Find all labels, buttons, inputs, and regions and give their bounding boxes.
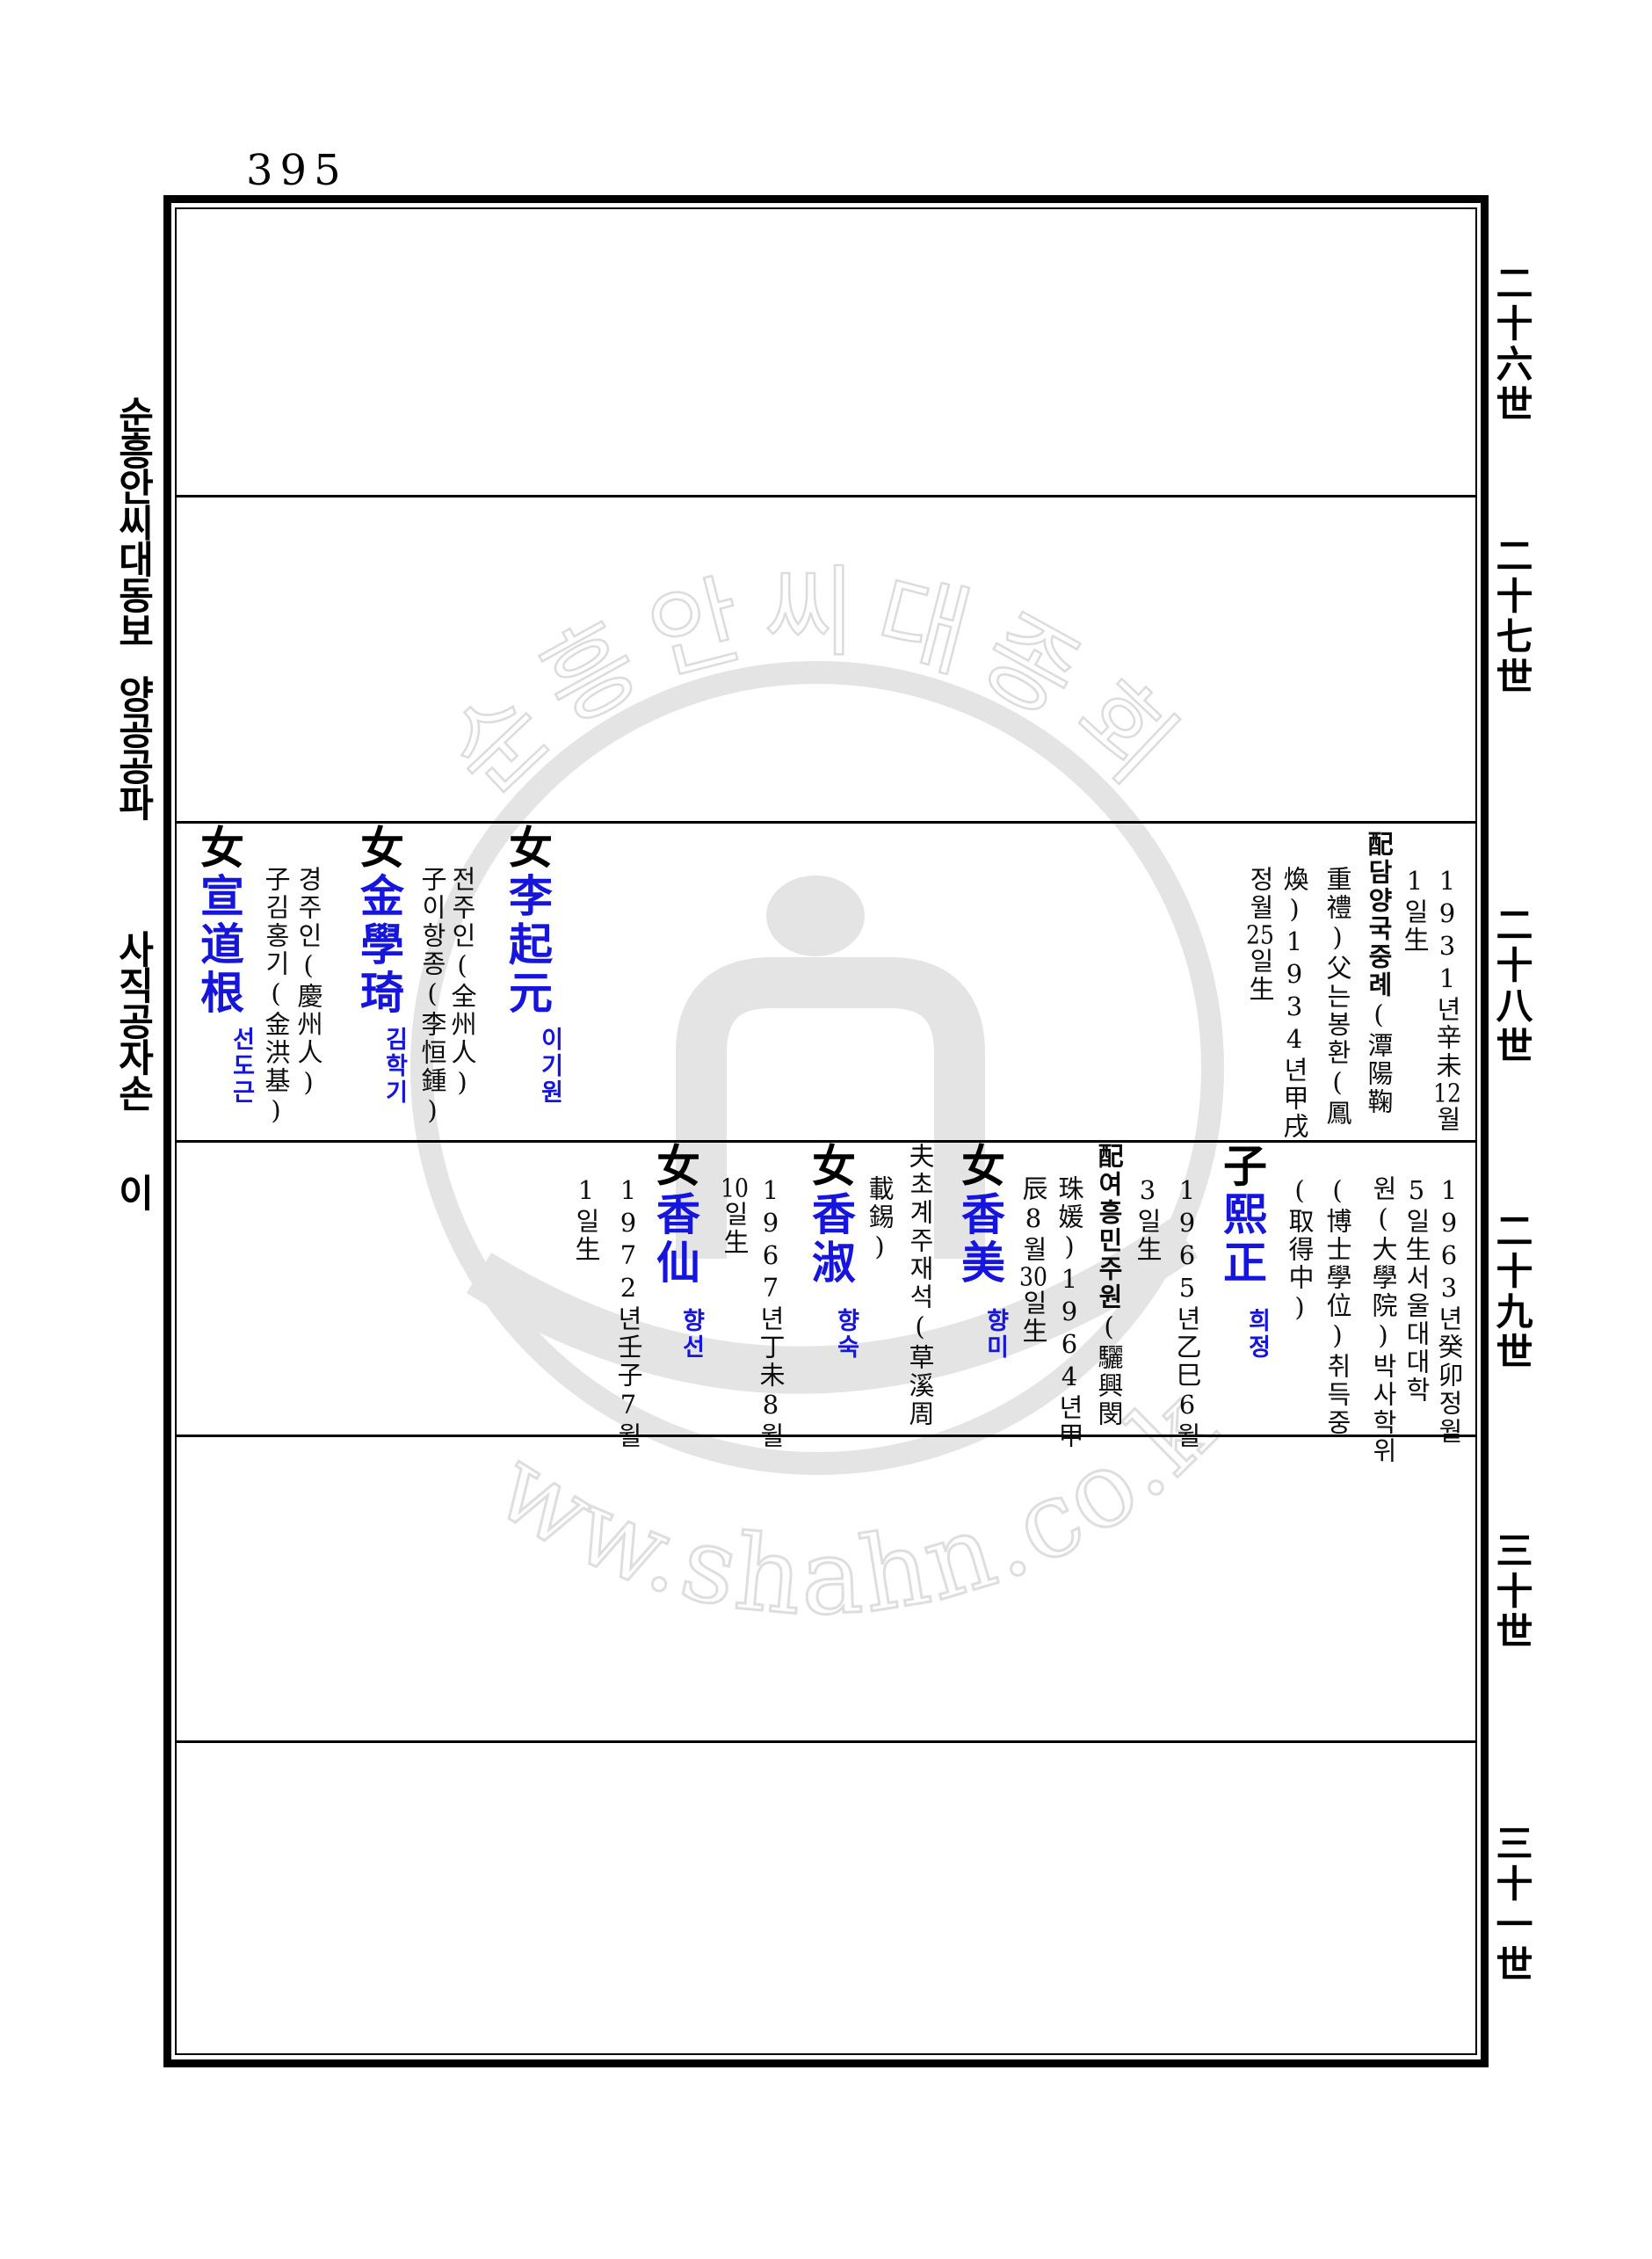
person-detail: 煥)1934년甲戌 — [1281, 866, 1307, 1141]
person-detail: 子김홍기(金洪基) — [263, 866, 288, 1128]
detail-text: (取得中) — [1285, 1175, 1315, 1325]
person-name: 女宣道根 — [197, 824, 241, 1018]
generation-label: 二十七世 — [1493, 536, 1530, 698]
detail-text: 30 — [1018, 1264, 1048, 1289]
person-name-reading: 선도근 — [229, 1027, 253, 1106]
generation-label: 二十六世 — [1493, 264, 1530, 425]
person-name: 女香美 — [958, 1143, 1002, 1288]
person-detail: 경주인(慶州人) — [295, 866, 321, 1100]
person-detail: 1963년癸卯정월 — [1436, 1175, 1461, 1446]
detail-text: 일生 — [1245, 948, 1275, 1004]
generation-label: 三十一世 — [1493, 1824, 1530, 1986]
detail-text: 1일生 — [571, 1175, 601, 1264]
person-name-reading: 희정 — [1245, 1308, 1269, 1361]
detail-text: 12 — [1432, 1080, 1462, 1106]
person-detail: 夫초계주재석(草溪周 — [907, 1143, 932, 1428]
person-detail: 1965년乙巳6월 — [1174, 1175, 1199, 1450]
detail-text: 1972년壬子7월 — [613, 1175, 643, 1450]
person-detail: 5일生서울대대학 — [1403, 1175, 1429, 1405]
detail-text: (驪興閔 — [1094, 1311, 1124, 1428]
detail-text: 25 — [1245, 922, 1275, 948]
generation-label: 二十八世 — [1493, 905, 1530, 1067]
person-name-hanja: 宣道根 — [193, 873, 245, 1018]
row-divider — [177, 821, 1475, 824]
person-detail: 10일生 — [721, 1175, 747, 1257]
detail-text: 辰8월 — [1018, 1175, 1048, 1264]
detail-text: 煥)1934년甲戌 — [1279, 866, 1309, 1141]
row-divider — [177, 495, 1475, 498]
person-detail: 1931년辛未12월 — [1434, 866, 1460, 1134]
detail-text: 子김홍기(金洪基) — [261, 866, 291, 1128]
detail-text: (潭陽鞠 — [1364, 999, 1394, 1116]
relation-prefix: 女 — [502, 824, 554, 873]
person-name-hanja: 李起元 — [502, 873, 554, 1018]
person-name-hanja: 香淑 — [805, 1191, 857, 1288]
person-detail: 配여흥민주원(驪興閔 — [1096, 1143, 1121, 1428]
detail-text: 원(大學院)박사학위 — [1368, 1175, 1398, 1465]
person-detail: 1일生 — [573, 1175, 598, 1264]
person-name-hanja: 金學琦 — [353, 873, 405, 1018]
detail-text: (博士學位)취득중 — [1322, 1175, 1352, 1437]
person-name-reading: 향숙 — [834, 1308, 858, 1361]
detail-text: 載錫) — [865, 1175, 895, 1264]
person-detail: 載錫) — [866, 1175, 892, 1264]
person-detail: 珠媛)1964년甲 — [1056, 1175, 1082, 1450]
detail-text: 夫초계주재석(草溪周 — [905, 1143, 935, 1428]
person-detail: 1972년壬子7월 — [615, 1175, 641, 1450]
person-detail: 정월25일生 — [1247, 866, 1272, 1004]
person-name-reading: 향미 — [983, 1308, 1007, 1361]
relation-prefix: 女 — [954, 1143, 1006, 1191]
detail-text: 3일生 — [1133, 1175, 1163, 1264]
relation-prefix: 子 — [1216, 1143, 1268, 1191]
detail-text: 전주인(全州人) — [447, 866, 477, 1100]
detail-text: 配여흥민주원 — [1094, 1143, 1124, 1311]
book-title-segment: 사직공자손 — [113, 930, 151, 1110]
row-divider — [177, 1435, 1475, 1437]
person-name: 女李起元 — [505, 824, 549, 1018]
generation-label: 二十九世 — [1493, 1211, 1530, 1373]
person-detail: 전주인(全州人) — [449, 866, 475, 1100]
detail-text: 重禮)父는봉환(鳳 — [1322, 866, 1352, 1128]
detail-text: 1965년乙巳6월 — [1172, 1175, 1202, 1450]
person-detail: 子이항종(李恒鍾) — [419, 866, 445, 1128]
detail-text: 珠媛)1964년甲 — [1054, 1175, 1084, 1450]
person-detail: (博士學位)취득중 — [1324, 1175, 1350, 1437]
row-divider — [177, 1740, 1475, 1743]
generation-label: 三十世 — [1493, 1531, 1530, 1652]
genealogy-page: { "page_number": "395", "side_title": { … — [0, 0, 1652, 2259]
person-name: 女香仙 — [653, 1143, 697, 1288]
person-name: 子熙正 — [1220, 1143, 1264, 1288]
detail-text: 1963년癸卯정월 — [1434, 1175, 1464, 1446]
detail-text: 配담양국중례 — [1364, 831, 1394, 999]
person-detail: 원(大學院)박사학위 — [1370, 1175, 1395, 1465]
book-title-segment: 순흥안씨대동보 — [113, 396, 151, 648]
person-detail: 配담양국중례(潭陽鞠 — [1366, 831, 1391, 1116]
detail-text: 경주인(慶州人) — [293, 866, 323, 1100]
person-detail: 1967년丁未8월 — [757, 1175, 783, 1450]
detail-text: 1931년辛未 — [1432, 866, 1462, 1080]
person-name-hanja: 香美 — [954, 1191, 1006, 1288]
detail-text: 정월 — [1245, 866, 1275, 922]
book-title-segment: 양공공파 — [113, 675, 151, 819]
detail-text: 子이항종(李恒鍾) — [417, 866, 447, 1128]
person-detail: 重禮)父는봉환(鳳 — [1324, 866, 1350, 1128]
person-detail: 3일生 — [1134, 1175, 1160, 1264]
person-name: 女香淑 — [808, 1143, 852, 1288]
detail-text: 10 — [720, 1175, 750, 1201]
person-detail: 1일生 — [1402, 866, 1427, 955]
detail-text: 1일生 — [1400, 866, 1430, 955]
person-name: 女金學琦 — [357, 824, 401, 1018]
person-detail: 辰8월30일生 — [1020, 1175, 1046, 1346]
person-name-reading: 이기원 — [538, 1027, 562, 1106]
person-name-hanja: 熙正 — [1216, 1191, 1268, 1288]
relation-prefix: 女 — [805, 1143, 857, 1191]
person-detail: (取得中) — [1286, 1175, 1312, 1325]
detail-text: 일生 — [1018, 1289, 1048, 1346]
person-name-reading: 향선 — [679, 1308, 703, 1361]
detail-text: 5일生서울대대학 — [1402, 1175, 1431, 1405]
detail-text: 일生 — [720, 1201, 750, 1257]
relation-prefix: 女 — [649, 1143, 701, 1191]
person-name-reading: 김학기 — [382, 1027, 406, 1106]
person-name-hanja: 香仙 — [649, 1191, 701, 1288]
relation-prefix: 女 — [193, 824, 245, 873]
detail-text: 1967년丁未8월 — [756, 1175, 786, 1450]
book-title-segment: 이 — [113, 1173, 151, 1209]
detail-text: 월 — [1432, 1106, 1462, 1134]
relation-prefix: 女 — [353, 824, 405, 873]
